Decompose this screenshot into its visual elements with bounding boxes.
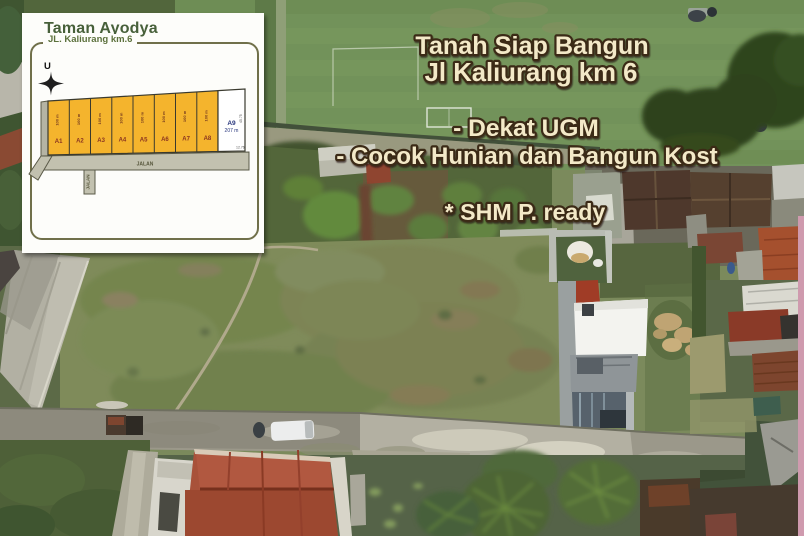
svg-text:100 m: 100 m — [161, 111, 166, 123]
svg-text:A1: A1 — [55, 139, 63, 145]
svg-text:- Cocok Hunian dan Bangun Kost: - Cocok Hunian dan Bangun Kost — [336, 143, 717, 170]
svg-text:A5: A5 — [140, 137, 148, 143]
svg-text:Tanah Siap Bangun: Tanah Siap Bangun — [415, 32, 648, 60]
svg-text:JALAN: JALAN — [137, 162, 154, 168]
svg-text:Jl Kaliurang km 6: Jl Kaliurang km 6 — [425, 59, 638, 87]
svg-text:100 m: 100 m — [203, 110, 208, 122]
svg-text:A9: A9 — [227, 120, 236, 127]
svg-text:A2: A2 — [76, 139, 84, 145]
svg-text:A4: A4 — [119, 138, 127, 144]
svg-text:100 m: 100 m — [140, 111, 145, 123]
svg-text:JALAN: JALAN — [86, 174, 91, 189]
svg-text:* SHM P. ready: * SHM P. ready — [445, 199, 606, 225]
svg-text:100 m: 100 m — [97, 113, 102, 125]
svg-text:100 m: 100 m — [55, 114, 60, 126]
svg-text:100 m: 100 m — [118, 112, 123, 124]
svg-text:A3: A3 — [97, 138, 105, 144]
svg-text:A6: A6 — [161, 137, 169, 143]
svg-text:100 m: 100 m — [182, 110, 187, 122]
svg-text:A7: A7 — [182, 136, 190, 142]
svg-text:- Dekat UGM: - Dekat UGM — [453, 115, 599, 142]
svg-text:100 m: 100 m — [76, 113, 81, 125]
svg-text:207 m: 207 m — [225, 128, 239, 134]
svg-text:A8: A8 — [204, 136, 212, 142]
svg-text:12.76: 12.76 — [236, 146, 245, 150]
svg-text:45.75: 45.75 — [239, 114, 243, 123]
